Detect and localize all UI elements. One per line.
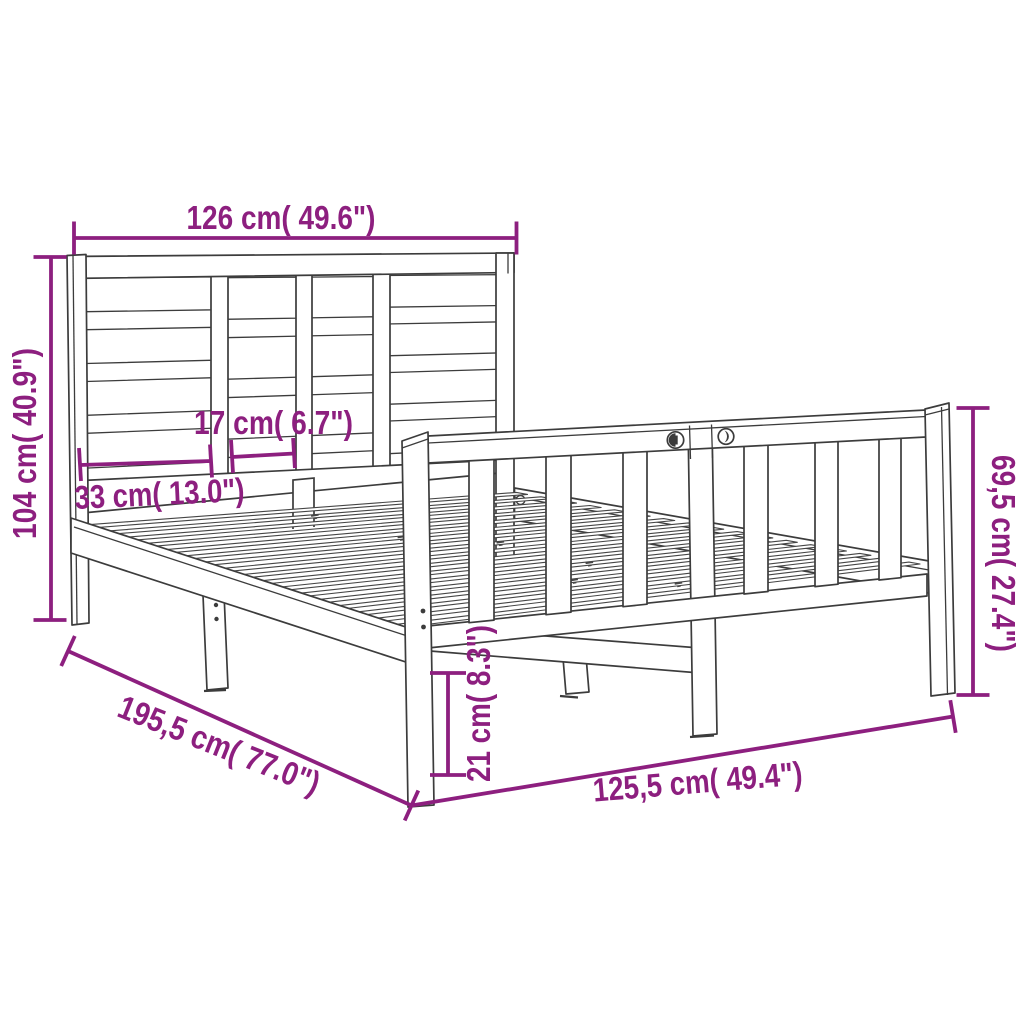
svg-text:69,5 cm( 27.4"): 69,5 cm( 27.4") xyxy=(985,455,1022,652)
svg-text:104 cm( 40.9"): 104 cm( 40.9") xyxy=(6,348,43,539)
svg-text:17 cm( 6.7"): 17 cm( 6.7") xyxy=(194,404,353,441)
svg-text:126 cm( 49.6"): 126 cm( 49.6") xyxy=(187,199,376,236)
svg-text:21 cm( 8.3"): 21 cm( 8.3") xyxy=(460,625,497,782)
